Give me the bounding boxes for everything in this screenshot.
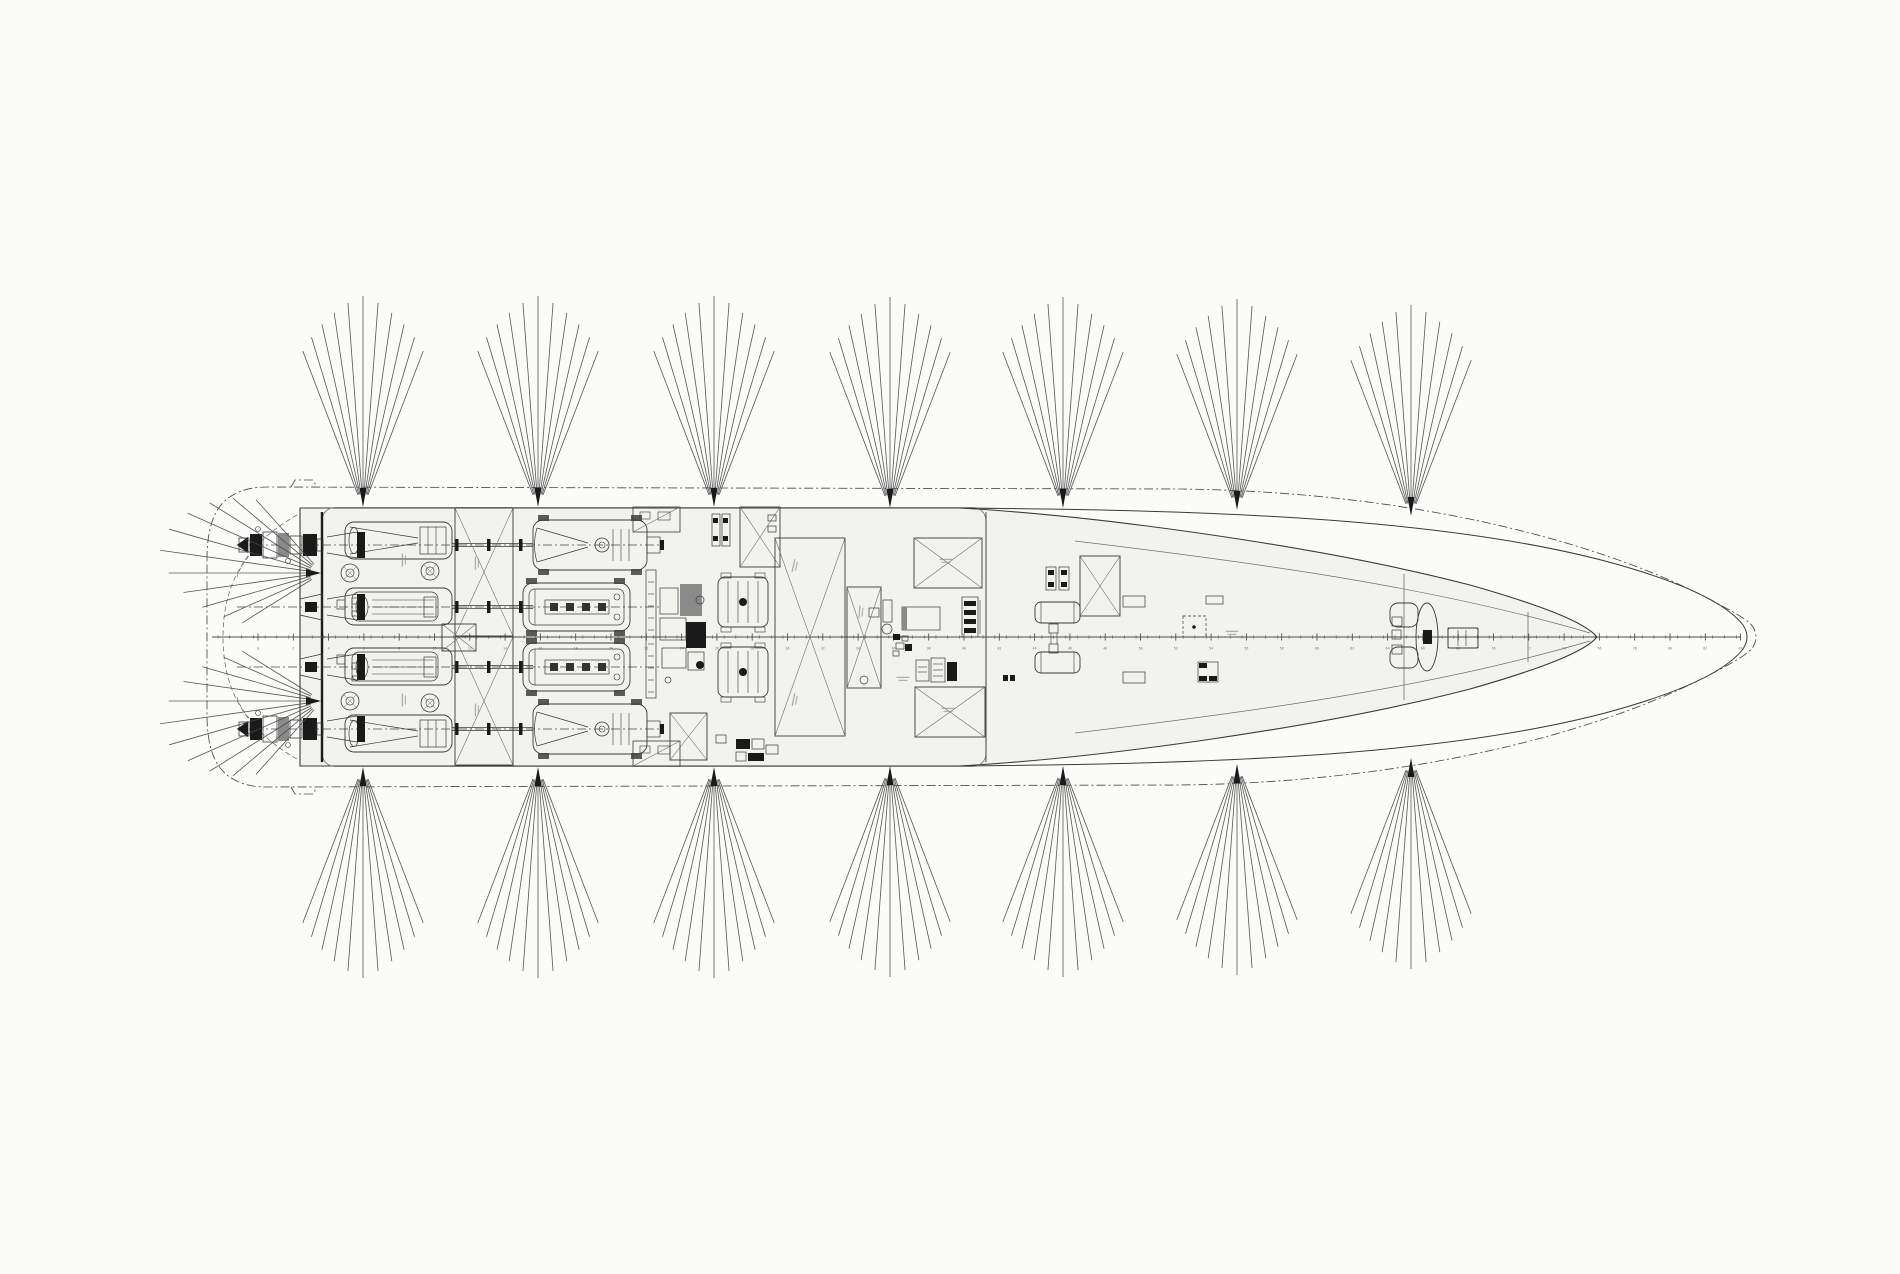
svg-text:66: 66 (1421, 646, 1425, 650)
svg-text:2: 2 (292, 646, 294, 650)
svg-text:38: 38 (927, 646, 931, 650)
spray-fan (1003, 297, 1123, 508)
general-arrangement-svg: 0246810121416182022242628303234363840424… (0, 0, 1900, 1274)
svg-text:42: 42 (997, 646, 1001, 650)
svg-text:16: 16 (538, 646, 542, 650)
svg-text:80: 80 (1668, 646, 1672, 650)
svg-text:40: 40 (962, 646, 966, 650)
svg-text:0: 0 (257, 646, 259, 650)
svg-text:72: 72 (1527, 646, 1531, 650)
spray-fan (478, 767, 598, 978)
svg-text:74: 74 (1562, 646, 1566, 650)
svg-text:48: 48 (1103, 646, 1107, 650)
ship-general-arrangement-drawing: 0246810121416182022242628303234363840424… (0, 0, 1900, 1274)
svg-text:30: 30 (785, 646, 789, 650)
svg-text:78: 78 (1633, 646, 1637, 650)
spray-fans-top (303, 296, 1471, 516)
svg-text:58: 58 (1280, 646, 1284, 650)
spray-fan (830, 297, 950, 508)
spray-fan-stern (160, 651, 321, 775)
svg-text:20: 20 (609, 646, 613, 650)
spray-fan-stern (160, 498, 321, 622)
svg-text:34: 34 (856, 646, 860, 650)
svg-text:14: 14 (503, 646, 507, 650)
spray-fan (1351, 758, 1471, 969)
spray-fan (830, 766, 950, 977)
spray-fan (1177, 299, 1297, 510)
spray-fan (303, 767, 423, 978)
svg-text:70: 70 (1491, 646, 1495, 650)
svg-text:52: 52 (1174, 646, 1178, 650)
spray-fan (1351, 305, 1471, 516)
svg-text:76: 76 (1597, 646, 1601, 650)
spray-fan (478, 296, 598, 507)
svg-text:36: 36 (891, 646, 895, 650)
svg-text:32: 32 (821, 646, 825, 650)
spray-fans-bottom (303, 758, 1471, 978)
svg-text:56: 56 (1244, 646, 1248, 650)
svg-text:18: 18 (574, 646, 578, 650)
svg-text:4: 4 (328, 646, 330, 650)
spray-fan (654, 296, 774, 507)
svg-text:50: 50 (1138, 646, 1142, 650)
spray-fan (1177, 764, 1297, 975)
svg-text:60: 60 (1315, 646, 1319, 650)
svg-text:44: 44 (1033, 646, 1037, 650)
svg-text:82: 82 (1703, 646, 1707, 650)
svg-text:26: 26 (715, 646, 719, 650)
svg-text:46: 46 (1068, 646, 1072, 650)
svg-text:64: 64 (1386, 646, 1390, 650)
svg-text:62: 62 (1350, 646, 1354, 650)
svg-text:84: 84 (1739, 646, 1743, 650)
spray-fan (1003, 766, 1123, 977)
spray-fan (654, 767, 774, 978)
spray-fan (303, 296, 423, 507)
svg-text:54: 54 (1209, 646, 1213, 650)
